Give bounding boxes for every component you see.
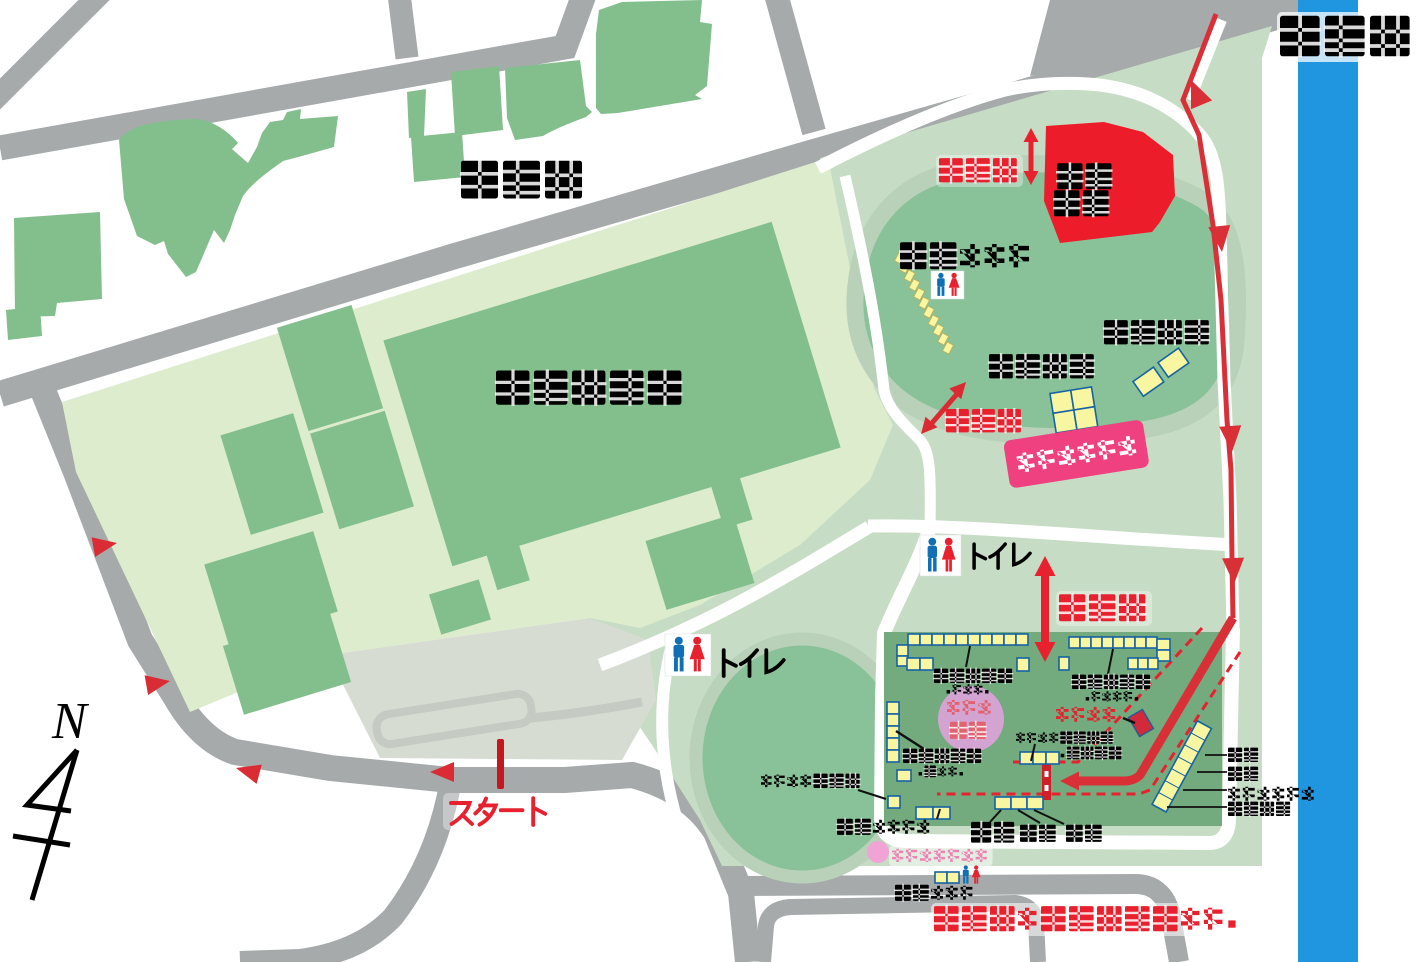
svg-text:N: N: [51, 693, 90, 750]
